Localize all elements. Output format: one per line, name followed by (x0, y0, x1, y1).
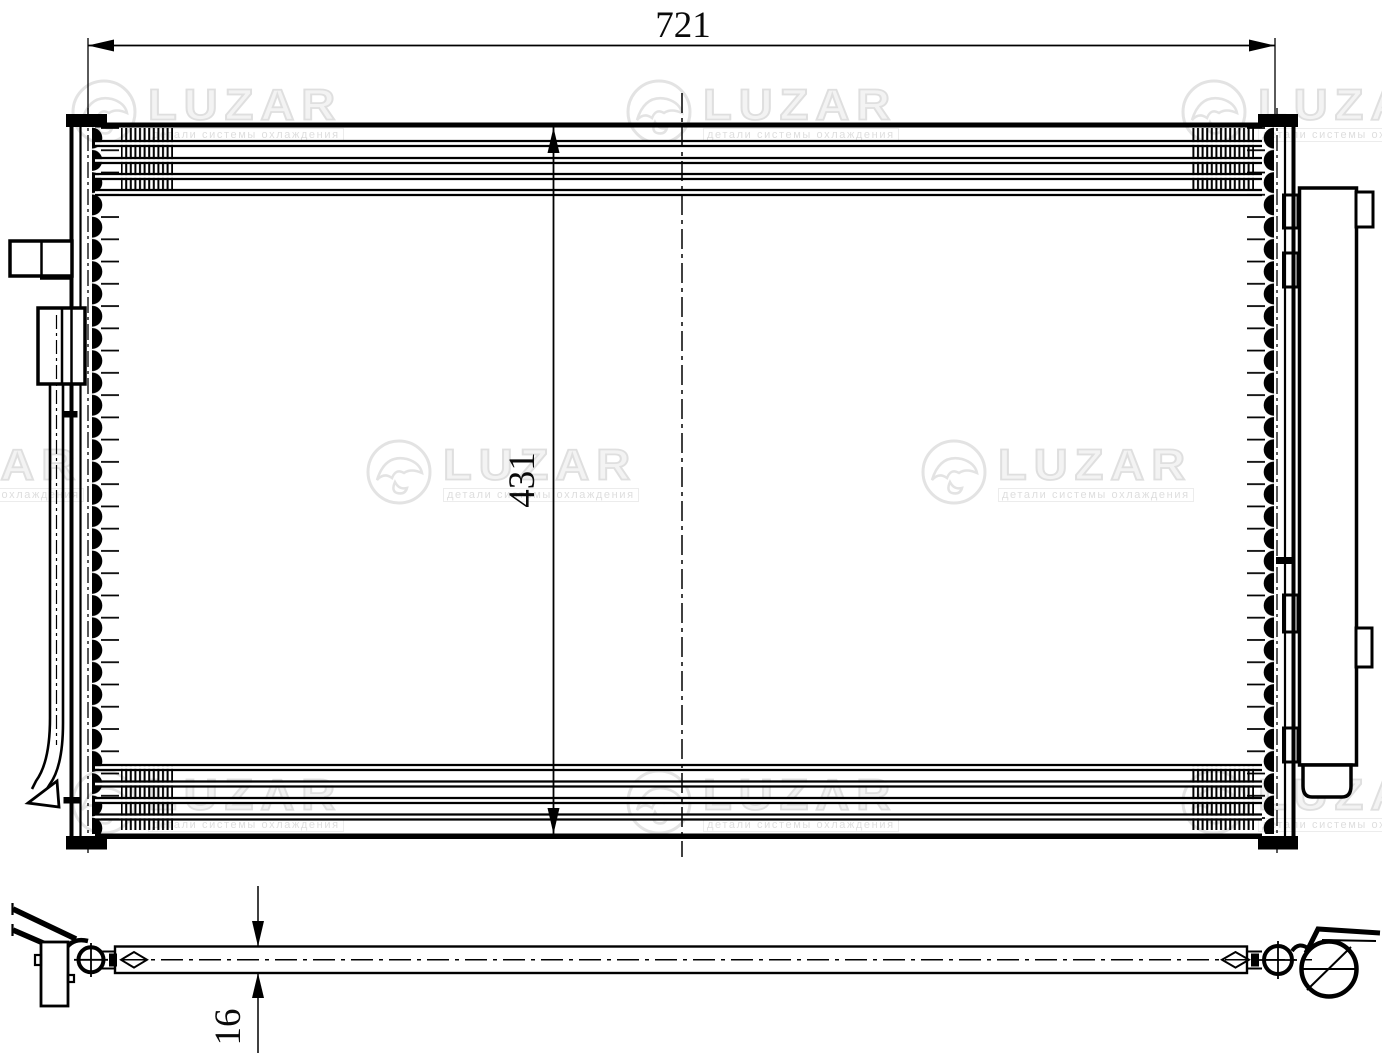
drawing-page: LUZARдетали системы охлаждения LUZARдета… (0, 0, 1382, 1064)
core-bottom-edge (95, 834, 1262, 840)
pipe-outer (32, 384, 50, 789)
inlet-outlet-fittings (10, 241, 85, 807)
profile-left-block (41, 942, 68, 1006)
core-tubes (95, 141, 1262, 820)
dimension-width-label: 721 (655, 5, 711, 46)
dimension-height-label: 431 (502, 452, 543, 508)
dimension-height: 431 (502, 128, 560, 835)
drier-body (1300, 188, 1357, 765)
pipe-weld-tick (64, 411, 78, 418)
fin-strip-right (1247, 127, 1274, 834)
fin-strip-left (92, 127, 119, 834)
profile-view (13, 903, 1381, 1006)
core-top-edge (95, 123, 1262, 128)
drier-weld-tick (1276, 557, 1293, 564)
pipe-weld-tick (64, 797, 80, 804)
condenser-drawing: 721 431 (0, 0, 1382, 1064)
receiver-drier (1276, 188, 1373, 797)
drier-bottom-cap (1303, 765, 1351, 797)
pipe-inner (45, 384, 63, 792)
dimension-thickness-label: 16 (208, 1009, 249, 1046)
drier-tab-top (1356, 192, 1373, 227)
drier-tab-bottom (1356, 628, 1372, 667)
